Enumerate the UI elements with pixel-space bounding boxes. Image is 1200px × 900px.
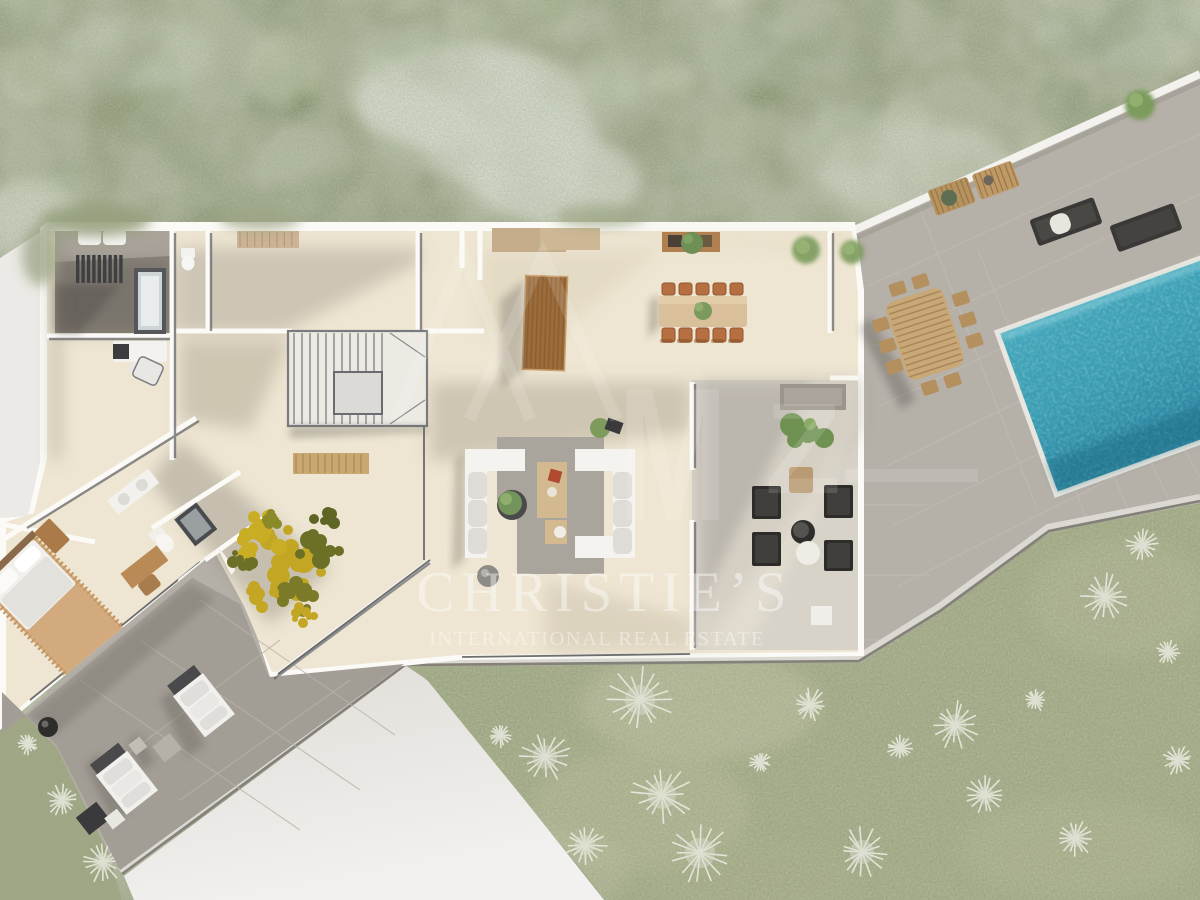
svg-text:Z: Z: [765, 377, 841, 521]
svg-text:INTERNATIONAL REAL ESTATE: INTERNATIONAL REAL ESTATE: [429, 628, 765, 650]
svg-text:M: M: [618, 349, 728, 561]
svg-text:CHRISTIE’S: CHRISTIE’S: [416, 561, 793, 624]
